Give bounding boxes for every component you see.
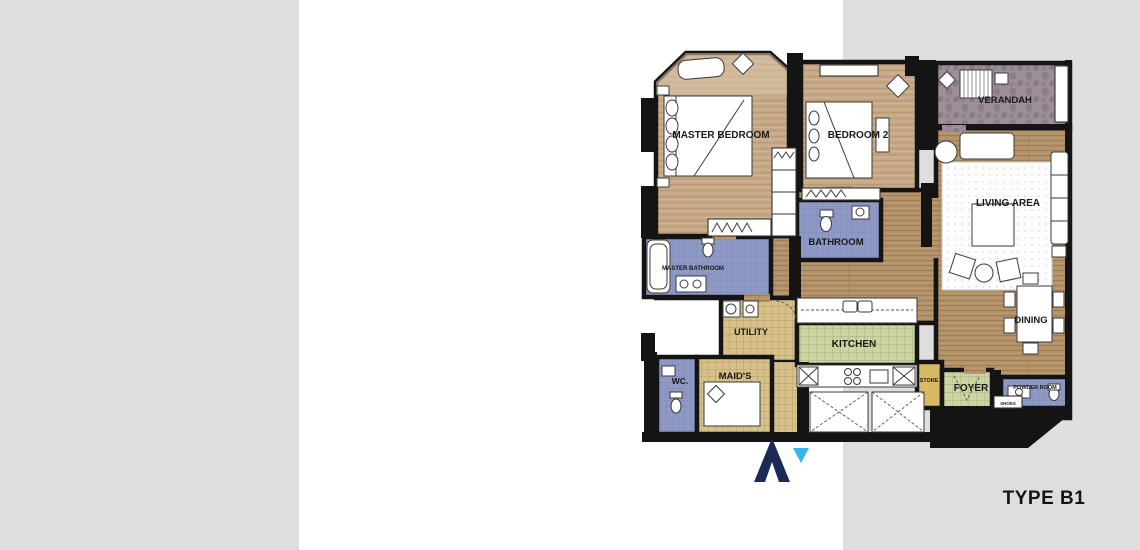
logo-chevron-icon <box>754 438 790 482</box>
brand-logo <box>751 436 813 486</box>
label-maids: MAID'S <box>719 371 752 382</box>
label-living-area: LIVING AREA <box>976 198 1040 209</box>
label-verandah: VERANDAH <box>978 95 1032 106</box>
page-background: MASTER BEDROOM BEDROOM 2 VERANDAH LIVING… <box>0 0 1140 550</box>
plan-type-label: TYPE B1 <box>984 488 1104 510</box>
label-shoes: SHOES <box>1000 401 1016 406</box>
label-wc: WC. <box>672 376 689 386</box>
kitchen-fixtures <box>797 298 924 432</box>
label-store: STORE <box>920 378 939 384</box>
label-dining: DINING <box>1014 315 1047 326</box>
label-powder-room: POWDER ROOM <box>1013 385 1057 391</box>
logo-triangle-icon <box>793 448 809 463</box>
label-master-bedroom: MASTER BEDROOM <box>672 130 769 141</box>
label-kitchen: KITCHEN <box>832 339 876 350</box>
floorplan-panel: MASTER BEDROOM BEDROOM 2 VERANDAH LIVING… <box>299 0 843 550</box>
label-foyer: FOYER <box>954 383 989 394</box>
maids-fixtures <box>704 382 760 426</box>
label-master-bathroom: MASTER BATHROOM <box>662 266 724 272</box>
label-bathroom: BATHROOM <box>808 237 863 248</box>
floor-plan-drawing: MASTER BEDROOM BEDROOM 2 VERANDAH LIVING… <box>624 40 1094 455</box>
label-bedroom-2: BEDROOM 2 <box>828 130 889 141</box>
label-utility: UTILITY <box>734 327 768 337</box>
